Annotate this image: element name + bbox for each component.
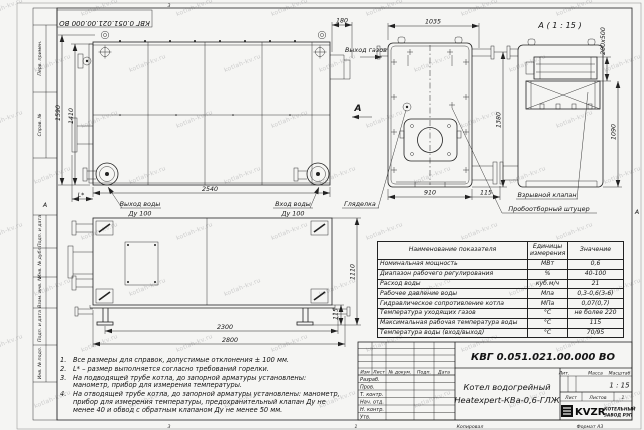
spec-row: Температура уходящих газов°Сне более 220 bbox=[378, 308, 624, 318]
plan-view-dims: 2300 2800 1110 115 bbox=[93, 218, 361, 347]
spec-cell-value: 115 bbox=[568, 318, 624, 328]
titleblock-col-data: Дата bbox=[437, 369, 450, 375]
spec-cell-name: Температура воды (вход/выход) bbox=[378, 328, 528, 338]
stamp-text: КВГ 0.051.021.00.000 ВО bbox=[59, 19, 150, 27]
view-a-dims: 200x500 1090 bbox=[597, 27, 622, 187]
section-letter: А bbox=[354, 104, 362, 114]
frame-cell-podp-data-1: Подп. и дата bbox=[37, 215, 43, 247]
dim-200x500: 200x500 bbox=[600, 27, 607, 55]
dim-2300: 2300 bbox=[217, 324, 233, 331]
dim-1090: 1090 bbox=[611, 124, 618, 140]
spec-table: Наименование показателя Единицыизмерения… bbox=[377, 241, 624, 338]
label-water-in-dn: Ду 100 bbox=[280, 210, 304, 218]
spec-cell-name: Диапазон рабочего регулирования bbox=[378, 269, 528, 279]
spec-cell-name: Расход воды bbox=[378, 279, 528, 289]
titleblock-sheet-label: Лист bbox=[564, 395, 577, 401]
titleblock-col-podp: Подп. bbox=[417, 369, 431, 375]
spec-cell-units: Мпа bbox=[528, 289, 568, 299]
spec-cell-units: °С bbox=[528, 318, 568, 328]
titleblock-mass-label: Масса bbox=[588, 371, 603, 377]
spec-col-units-header: Единицыизмерения bbox=[528, 242, 568, 260]
dim-1410: 1410 bbox=[68, 108, 75, 124]
frame-cell-inv-dubl: Инв. № дубл. bbox=[37, 246, 43, 278]
spec-cell-name: Температура уходящих газов bbox=[378, 308, 528, 318]
side-view-dims: 1035 910 115 1380 bbox=[388, 19, 507, 201]
spec-col-value-header: Значение bbox=[568, 242, 624, 260]
note-item: 4.На отводящей трубе котла, до запорной … bbox=[58, 391, 342, 414]
spec-row: Рабочее давление водыМпа0,3-0,6(3-6) bbox=[378, 289, 624, 299]
format-label: Формат А3 bbox=[577, 424, 604, 430]
spec-header-row: Наименование показателя Единицыизмерения… bbox=[378, 242, 624, 260]
front-view bbox=[72, 31, 350, 185]
titleblock-row-nachotd: Нач. отд. bbox=[360, 400, 384, 406]
label-water-out: Выход воды bbox=[120, 200, 161, 208]
zone-letter-right: А bbox=[634, 209, 639, 216]
spec-cell-value: 0,07(0,7) bbox=[568, 299, 624, 309]
view-a: А ( 1 : 15 ) bbox=[500, 20, 603, 187]
frame-cell-podp-data-2: Подп. и дата bbox=[37, 310, 43, 342]
titleblock-name-line2: Heatexpert-КВа-0,6-ГЛЖ bbox=[454, 395, 560, 405]
dim-l-star: L* bbox=[78, 192, 85, 199]
titleblock-row-prov: Пров. bbox=[360, 385, 375, 391]
frame-cell-vzam-inv: Взам. инв. № bbox=[37, 276, 43, 308]
frame-cell-perv-primen: Перв. примен. bbox=[37, 40, 43, 75]
view-a-title: А ( 1 : 15 ) bbox=[537, 20, 581, 30]
copy-label: Копировал bbox=[457, 424, 484, 430]
spec-cell-name: Максимальная рабочая температура воды bbox=[378, 318, 528, 328]
frame-cell-inv-podl: Инв. № подл. bbox=[37, 347, 43, 379]
label-sampling: Пробоотборный штуцер bbox=[508, 205, 589, 213]
label-explosion-valve: Взрывной клапан bbox=[517, 191, 576, 199]
spec-row: Максимальная рабочая температура воды°С1… bbox=[378, 318, 624, 328]
dim-910: 910 bbox=[424, 190, 436, 197]
company-name-line2: ЗАВОД РЭП bbox=[604, 413, 633, 419]
spec-cell-value: 21 bbox=[568, 279, 624, 289]
spec-cell-units: куб.м/ч bbox=[528, 279, 568, 289]
label-gas-out: Выход газов bbox=[345, 46, 387, 54]
spec-cell-units: МВт bbox=[528, 260, 568, 270]
label-water-out-dn: Ду 100 bbox=[127, 210, 151, 218]
spec-cell-name: Рабочее давление воды bbox=[378, 289, 528, 299]
company-logo-text: KVZR bbox=[575, 407, 606, 418]
doc-number-stamp: КВГ 0.051.021.00.000 ВО bbox=[57, 10, 152, 27]
spec-cell-value: 0,6 bbox=[568, 260, 624, 270]
callout-labels: Выход воды Ду 100 Вход воды Ду 100 Выход… bbox=[108, 46, 597, 218]
spec-cell-value: 70/95 bbox=[568, 328, 624, 338]
titleblock-scale-value: 1 : 15 bbox=[609, 382, 630, 390]
drawing-sheet: kotlah-kv.rukotlah-kv.rukotlah-kv.rukotl… bbox=[0, 0, 644, 430]
titleblock-col-docnum: № докум. bbox=[388, 369, 412, 375]
note-item: 3.На подводящей трубе котла, до запорной… bbox=[58, 375, 342, 391]
company-name-line1: КОТЕЛЬНЫЙ bbox=[604, 405, 636, 413]
sheet-number-bottom: 1 bbox=[355, 424, 358, 430]
zone-number-bottom: 3 bbox=[168, 424, 171, 430]
spec-cell-units: % bbox=[528, 269, 568, 279]
spec-cell-value: 40-100 bbox=[568, 269, 624, 279]
spec-row: Номинальная мощностьМВт0,6 bbox=[378, 260, 624, 270]
spec-cell-value: не более 220 bbox=[568, 308, 624, 318]
spec-row: Температура воды (вход/выход)°С70/95 bbox=[378, 328, 624, 338]
titleblock-row-tkontr: Т. контр. bbox=[360, 392, 383, 398]
titleblock-name-line1: Котел водогрейный bbox=[463, 382, 551, 392]
zone-number-top: 3 bbox=[168, 3, 171, 9]
dim-1110: 1110 bbox=[350, 264, 357, 280]
titleblock-col-list: Лист bbox=[372, 369, 385, 375]
titleblock-col-izm: Изм bbox=[360, 369, 370, 375]
dim-115-support: 115 bbox=[333, 308, 340, 320]
note-item: 2.L* – размер выполняется согласно требо… bbox=[58, 366, 342, 374]
zone-letter-left: А bbox=[42, 202, 47, 209]
dim-180: 180 bbox=[336, 18, 348, 25]
titleblock-row-razrab: Разраб. bbox=[360, 377, 380, 383]
titleblock-lit-label: Лит. bbox=[558, 371, 570, 377]
note-item: 1.Все размеры для справок, допустимые от… bbox=[58, 357, 342, 365]
notes-block: 1.Все размеры для справок, допустимые от… bbox=[58, 357, 342, 415]
frame-cell-sprav-n: Справ. № bbox=[37, 113, 43, 136]
spec-cell-units: МПа bbox=[528, 299, 568, 309]
spec-cell-units: °С bbox=[528, 328, 568, 338]
spec-cell-value: 0,3-0,6(3-6) bbox=[568, 289, 624, 299]
titleblock-row-nkontr: Н. контр. bbox=[360, 407, 384, 413]
dim-2540: 2540 bbox=[202, 186, 218, 193]
titleblock-sheets-label: Листов bbox=[588, 395, 606, 401]
plan-view bbox=[68, 218, 350, 325]
dim-1380: 1380 bbox=[496, 112, 503, 128]
spec-cell-name: Номинальная мощность bbox=[378, 260, 528, 270]
title-block: КВГ 0.051.021.00.000 ВО Котел водогрейны… bbox=[358, 342, 636, 421]
spec-cell-name: Гидравлическое сопротивление котла bbox=[378, 299, 528, 309]
label-water-in: Вход воды bbox=[275, 200, 311, 208]
label-sight-glass: Гляделка bbox=[344, 200, 376, 208]
dim-1035: 1035 bbox=[425, 19, 441, 26]
titleblock-sheets-value: 1 bbox=[622, 395, 625, 401]
spec-col-name-header: Наименование показателя bbox=[378, 242, 528, 260]
spec-row: Расход водыкуб.м/ч21 bbox=[378, 279, 624, 289]
titleblock-scale-label: Масштаб bbox=[609, 371, 631, 377]
spec-row: Гидравлическое сопротивление котлаМПа0,0… bbox=[378, 299, 624, 309]
dim-2800: 2800 bbox=[222, 337, 238, 344]
dim-115-stub: 115 bbox=[480, 190, 492, 197]
spec-row: Диапазон рабочего регулирования%40-100 bbox=[378, 269, 624, 279]
titleblock-doc-number: КВГ 0.051.021.00.000 ВО bbox=[471, 352, 615, 363]
spec-cell-units: °С bbox=[528, 308, 568, 318]
dim-1590: 1590 bbox=[55, 105, 62, 121]
titleblock-row-utv: Утв. bbox=[360, 415, 371, 421]
